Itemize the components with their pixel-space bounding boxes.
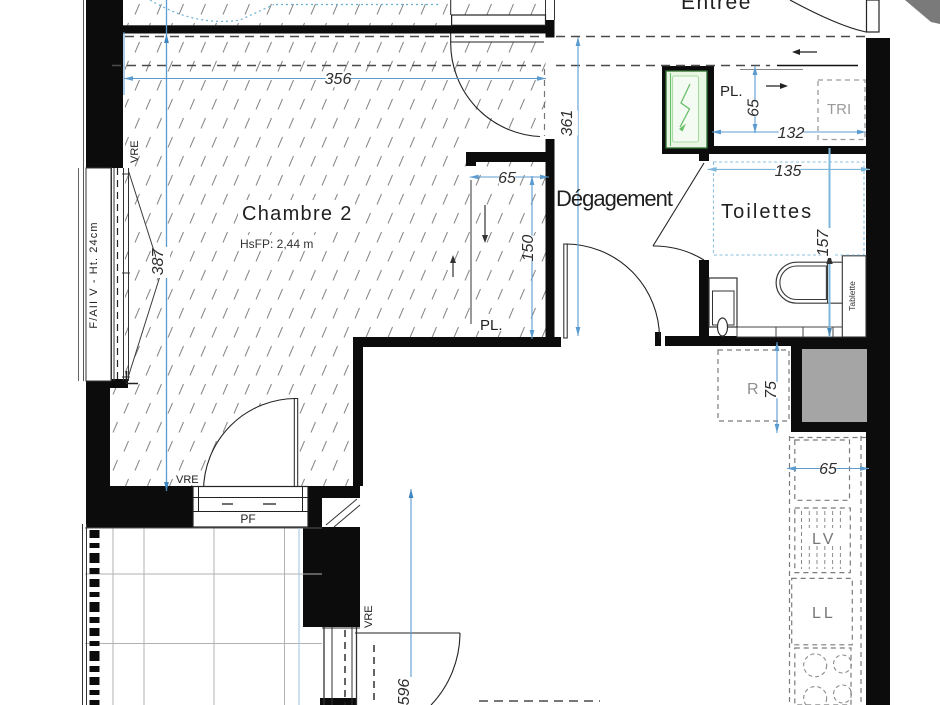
svg-text:HsFP: 2,44 m: HsFP: 2,44 m	[240, 237, 313, 251]
svg-text:TRI: TRI	[827, 101, 851, 118]
svg-text:65: 65	[498, 170, 516, 187]
svg-text:R: R	[747, 381, 759, 398]
svg-text:150: 150	[520, 235, 537, 262]
svg-text:65: 65	[746, 99, 763, 117]
svg-text:Chambre 2: Chambre 2	[242, 203, 353, 225]
svg-text:387: 387	[150, 248, 167, 276]
svg-text:F/AII V - Ht. 24cm: F/AII V - Ht. 24cm	[88, 221, 100, 328]
svg-text:361: 361	[559, 110, 576, 137]
svg-text:LL: LL	[812, 605, 836, 622]
svg-text:75: 75	[763, 381, 780, 399]
svg-text:LV: LV	[812, 531, 836, 548]
svg-text:132: 132	[778, 125, 805, 142]
svg-text:Dégagement: Dégagement	[556, 186, 673, 211]
svg-text:PL.: PL.	[720, 83, 743, 100]
svg-text:596: 596	[396, 679, 413, 705]
svg-text:Tablette: Tablette	[847, 281, 857, 311]
svg-text:VRE: VRE	[176, 474, 199, 486]
svg-text:VRE: VRE	[363, 605, 375, 628]
svg-text:Toilettes: Toilettes	[721, 201, 813, 223]
svg-text:VRE: VRE	[129, 140, 141, 163]
svg-text:PF: PF	[240, 512, 255, 526]
svg-text:135: 135	[775, 163, 802, 180]
svg-text:PL.: PL.	[480, 317, 503, 334]
svg-text:157: 157	[815, 229, 832, 257]
svg-text:Entrée: Entrée	[681, 0, 752, 14]
svg-text:65: 65	[819, 461, 837, 478]
svg-text:356: 356	[325, 71, 352, 88]
